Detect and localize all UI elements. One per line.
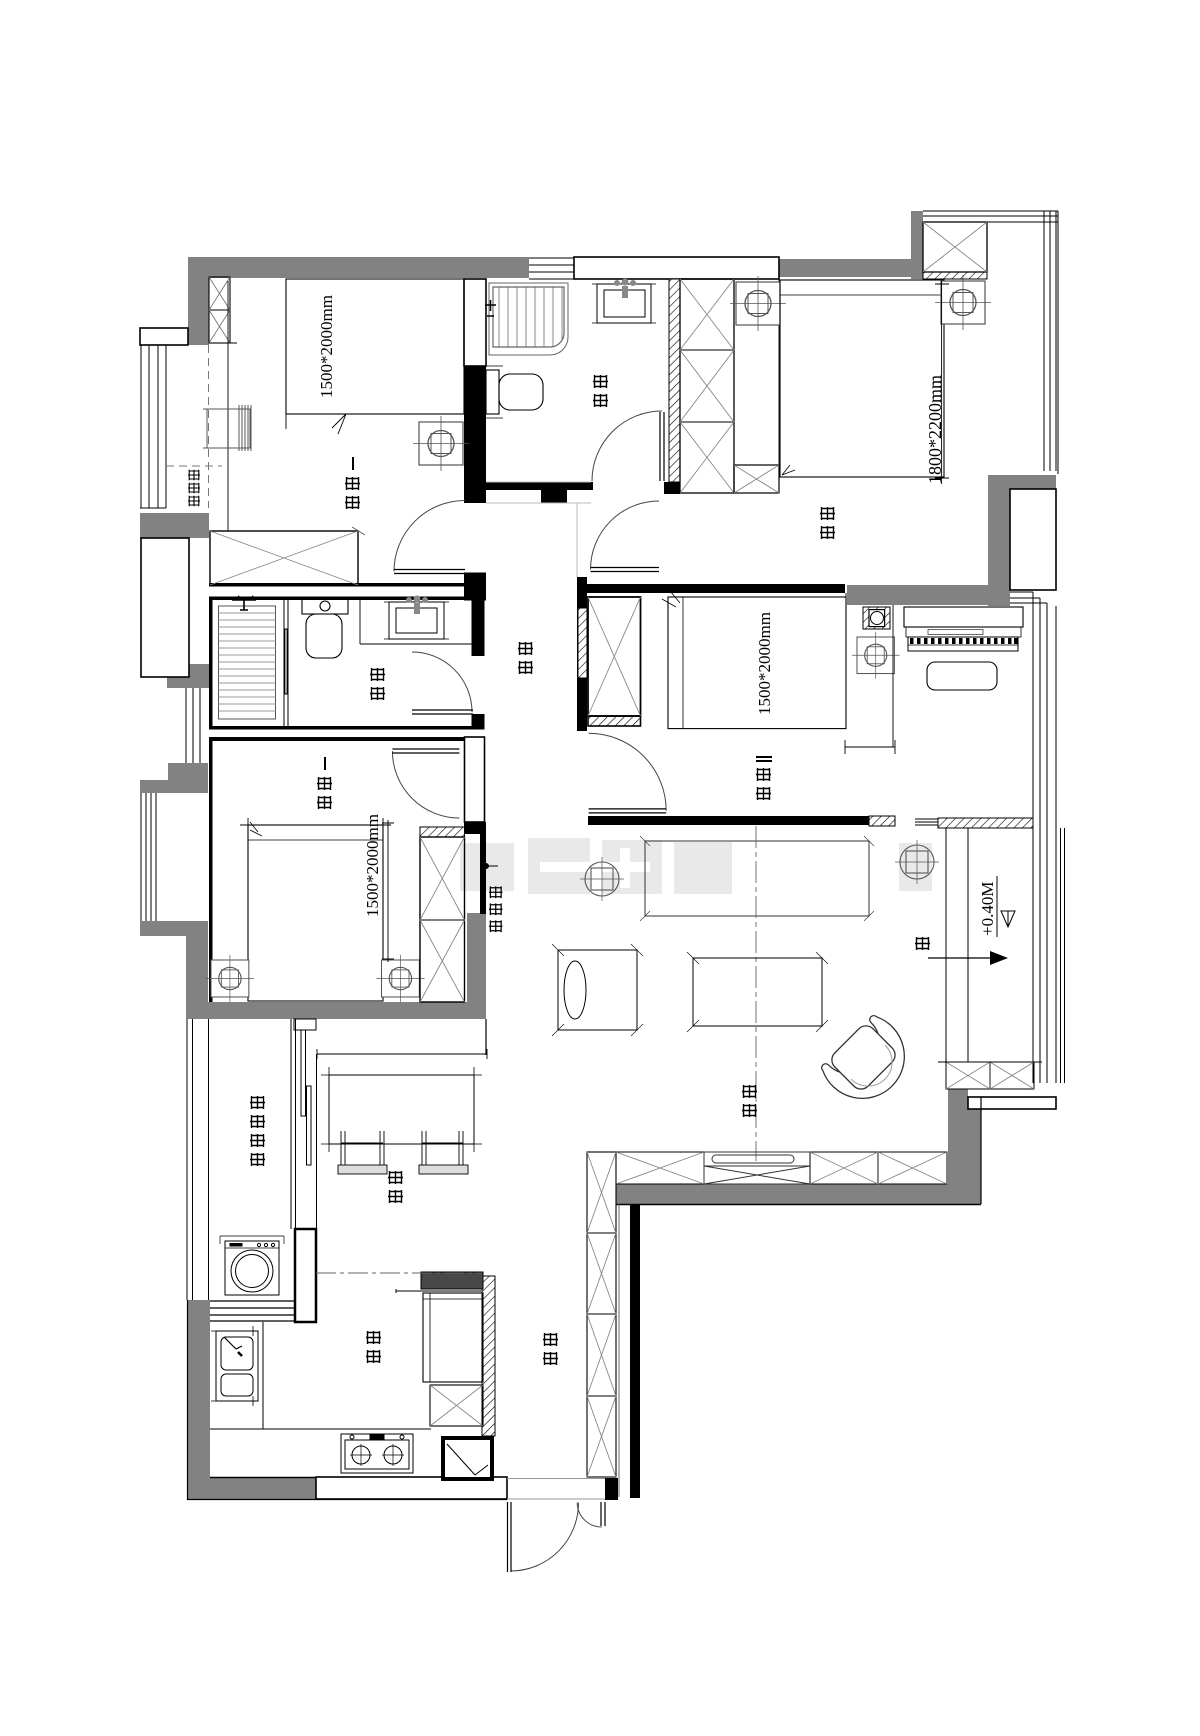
svg-text:1800*2200mm: 1800*2200mm — [925, 375, 945, 484]
svg-text:1500*2000mm: 1500*2000mm — [317, 295, 336, 398]
svg-text:1500*2000mm: 1500*2000mm — [363, 814, 382, 917]
svg-text:+0.40M: +0.40M — [978, 882, 997, 936]
svg-text:1500*2000mm: 1500*2000mm — [755, 612, 774, 715]
